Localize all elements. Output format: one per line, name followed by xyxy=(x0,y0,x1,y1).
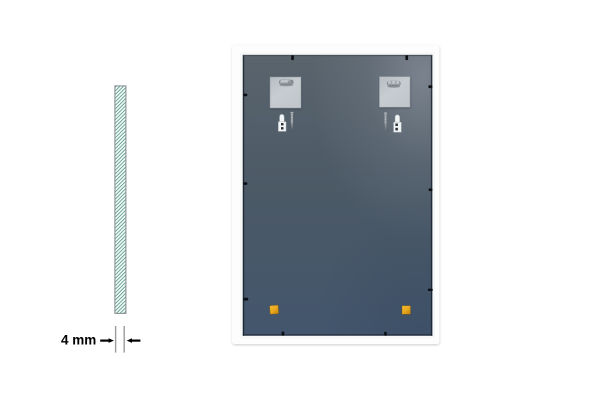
svg-text:4 mm: 4 mm xyxy=(61,333,96,348)
